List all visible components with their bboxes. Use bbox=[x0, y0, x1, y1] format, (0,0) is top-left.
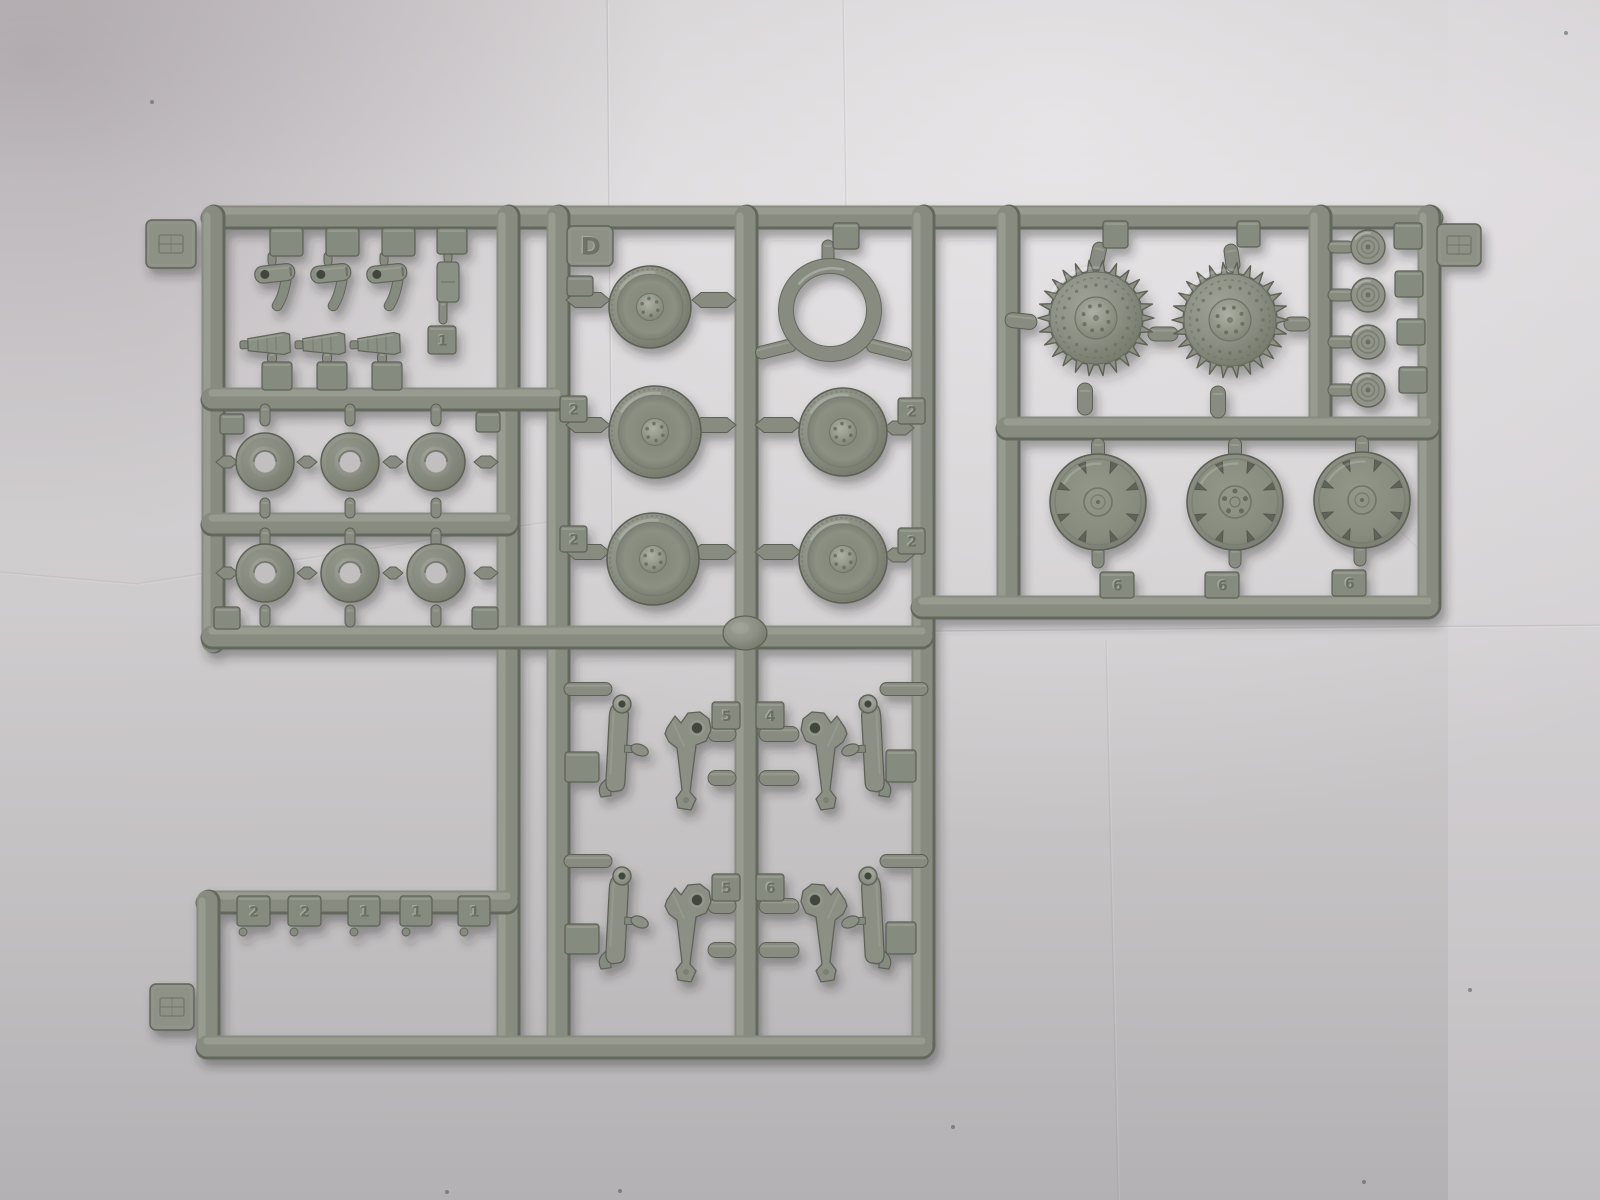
sprue-stub bbox=[880, 855, 928, 868]
part-number-tag: 22 bbox=[288, 896, 321, 926]
dust-speck bbox=[150, 100, 154, 104]
road-wheel bbox=[799, 515, 887, 603]
part-number-tag: 22 bbox=[560, 396, 587, 422]
idler-wheel-ring bbox=[321, 544, 379, 602]
embossed-number: 1 bbox=[412, 905, 422, 921]
embossed-number: 1 bbox=[360, 905, 370, 921]
gate-drip bbox=[460, 928, 468, 936]
part-number-tag: 22 bbox=[560, 526, 587, 552]
embossed-number: 2 bbox=[907, 535, 917, 551]
embossed-number: 1 bbox=[438, 334, 448, 350]
sprue-gate bbox=[833, 223, 859, 249]
part-connector bbox=[755, 418, 801, 433]
part-number-tag: 55 bbox=[712, 874, 740, 901]
part-number-tag: 22 bbox=[898, 398, 925, 424]
part-number-tag: 22 bbox=[898, 528, 925, 554]
sprue-stub bbox=[759, 771, 799, 786]
idler-wheel-ring bbox=[236, 544, 294, 602]
sprue-letter-tab: DD bbox=[567, 226, 613, 266]
return-roller bbox=[1351, 373, 1385, 407]
sprue-stub bbox=[345, 404, 355, 426]
part-number-tag: 22 bbox=[237, 896, 270, 926]
sprue-gate bbox=[476, 412, 500, 432]
embossed-number: 2 bbox=[569, 403, 579, 419]
embossed-number: 5 bbox=[722, 709, 732, 725]
sprue-stub bbox=[260, 404, 270, 426]
part-number-tag: 11 bbox=[400, 896, 432, 926]
part-number-tag: 55 bbox=[712, 702, 740, 729]
dust-speck bbox=[1564, 31, 1568, 35]
sprue-photo: 2222222266666655445566222211111111DD bbox=[0, 0, 1600, 1200]
part-number-tag: 11 bbox=[428, 326, 456, 354]
photo-canvas: 2222222266666655445566222211111111DD bbox=[0, 0, 1600, 1200]
sprue-stub bbox=[1328, 384, 1354, 396]
sprue-stub bbox=[1328, 241, 1354, 253]
embossed-number: 6 bbox=[1345, 577, 1355, 593]
dust-speck bbox=[1362, 1180, 1366, 1184]
sprue-stub bbox=[1284, 317, 1310, 331]
sprue-gate bbox=[472, 607, 498, 629]
sprue-stub bbox=[345, 605, 355, 627]
sprue-stub bbox=[1328, 289, 1354, 301]
sprue-stub bbox=[431, 605, 441, 627]
part-number-tag: 66 bbox=[1332, 570, 1366, 596]
sprue-stub bbox=[880, 683, 928, 696]
sprue-stub bbox=[708, 771, 736, 786]
idler-wheel-ring bbox=[236, 433, 294, 491]
sprue-stub bbox=[708, 943, 736, 958]
dust-speck bbox=[445, 1190, 449, 1194]
embossed-number: 2 bbox=[300, 905, 310, 921]
part-connector bbox=[755, 545, 801, 560]
embossed-number: 2 bbox=[249, 905, 259, 921]
road-wheel bbox=[609, 386, 701, 478]
mold-logo-tab bbox=[150, 984, 194, 1030]
sprue-gate bbox=[567, 276, 593, 296]
road-wheel bbox=[609, 266, 691, 348]
return-roller bbox=[1351, 230, 1385, 264]
part-number-tag: 66 bbox=[756, 874, 784, 901]
mold-logo-tab bbox=[1437, 224, 1481, 266]
hub-cover-wheel bbox=[1314, 452, 1410, 548]
idler-wheel-ring bbox=[407, 433, 465, 491]
sprue-stub bbox=[564, 683, 612, 696]
sprue-gate bbox=[1397, 319, 1425, 345]
embossed-number: 4 bbox=[766, 709, 776, 725]
sprue-stub bbox=[431, 404, 441, 426]
embossed-number: D bbox=[581, 233, 601, 261]
part-number-tag: 11 bbox=[348, 896, 380, 926]
sprue-gate bbox=[1394, 223, 1422, 249]
embossed-number: 6 bbox=[766, 881, 776, 897]
sprue-gate bbox=[317, 362, 347, 390]
return-roller bbox=[1351, 325, 1385, 359]
sprue-gate bbox=[326, 228, 359, 256]
hub-cover-wheel bbox=[1187, 454, 1283, 550]
part-number-tag: 66 bbox=[1100, 572, 1134, 598]
hub-cover-wheel bbox=[1050, 454, 1146, 550]
sprue-gate bbox=[262, 362, 292, 390]
dust-speck bbox=[618, 1189, 622, 1193]
sprue-gate bbox=[565, 752, 599, 782]
road-wheel bbox=[607, 513, 699, 605]
sprue-gate bbox=[372, 362, 402, 390]
part-number-tag: 66 bbox=[1205, 572, 1239, 598]
sprue-stub bbox=[345, 498, 355, 518]
sprue-gate bbox=[214, 607, 240, 629]
sprue-stub bbox=[1211, 386, 1226, 418]
mold-logo-tab bbox=[146, 220, 196, 268]
sprue-gate bbox=[220, 414, 244, 434]
sprue-stub bbox=[260, 605, 270, 627]
sprue-stub bbox=[759, 943, 799, 958]
paper-edge-band bbox=[1448, 0, 1600, 1200]
sprue-gate bbox=[1103, 221, 1128, 248]
gate-drip bbox=[350, 928, 358, 936]
idler-wheel-ring bbox=[321, 433, 379, 491]
sprue-gate bbox=[1395, 271, 1423, 297]
sprue-stub bbox=[1328, 336, 1354, 348]
gate-drip bbox=[239, 928, 247, 936]
road-wheel bbox=[799, 388, 887, 476]
sprue-stub bbox=[431, 498, 441, 518]
embossed-number: 2 bbox=[907, 405, 917, 421]
return-roller bbox=[1351, 278, 1385, 312]
gate-drip bbox=[402, 928, 410, 936]
gate-drip bbox=[290, 928, 298, 936]
embossed-number: 5 bbox=[722, 881, 732, 897]
part-number-tag: 11 bbox=[458, 896, 490, 926]
sprue-gate bbox=[886, 750, 916, 782]
part-number-tag: 44 bbox=[756, 702, 784, 729]
sprue-gate bbox=[886, 922, 916, 954]
sprue-gate bbox=[382, 228, 415, 256]
sprue-gate bbox=[1237, 221, 1260, 247]
injection-junction bbox=[723, 616, 767, 650]
sprue-stub bbox=[564, 855, 612, 868]
sprue-stub bbox=[1078, 383, 1093, 415]
sprue-gate bbox=[270, 228, 303, 256]
small-block-part bbox=[437, 262, 459, 302]
part-connector bbox=[692, 293, 736, 308]
sprue-stub bbox=[260, 498, 270, 518]
idler-wheel-ring bbox=[407, 544, 465, 602]
embossed-number: 2 bbox=[569, 533, 579, 549]
dust-speck bbox=[1468, 988, 1472, 992]
embossed-number: 6 bbox=[1113, 579, 1123, 595]
sprue-stub bbox=[1004, 312, 1037, 330]
embossed-number: 1 bbox=[470, 905, 480, 921]
embossed-number: 6 bbox=[1218, 579, 1228, 595]
sprue-gate bbox=[1399, 367, 1427, 393]
dust-speck bbox=[951, 1125, 955, 1129]
sprue-gate bbox=[565, 924, 599, 954]
sprue-gate bbox=[437, 228, 467, 254]
